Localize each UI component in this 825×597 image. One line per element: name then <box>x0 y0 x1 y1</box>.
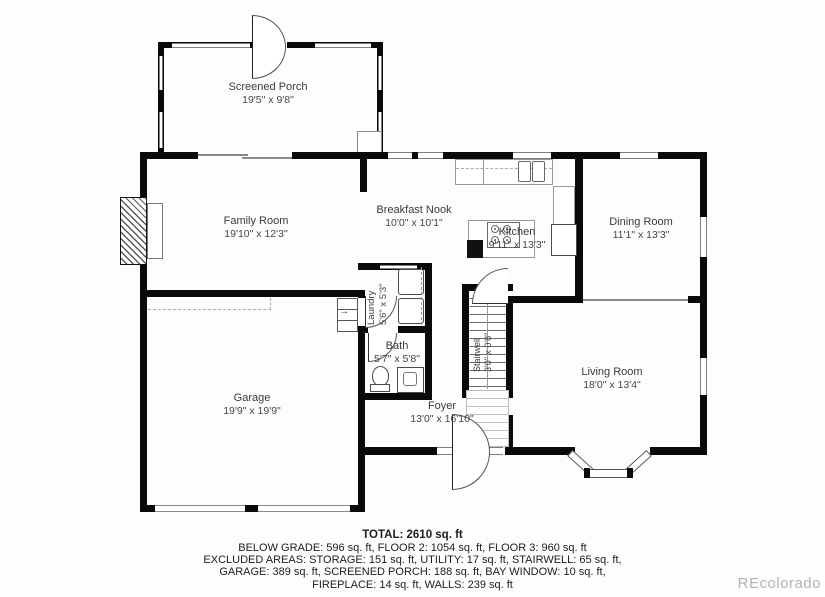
bath-sink <box>403 372 417 386</box>
total-area: TOTAL: 2610 sq. ft <box>0 529 825 542</box>
counter-divider <box>483 159 484 185</box>
floor-plan-canvas: ↑ → Screened Porch 19'5" x 9'8" <box>0 0 825 597</box>
wall <box>650 447 707 455</box>
bay-window-post <box>627 468 633 478</box>
summary-line: FIREPLACE: 14 sq. ft, WALLS: 239 sq. ft <box>0 579 825 591</box>
laundry-dashed-line <box>421 267 422 325</box>
refrigerator <box>551 224 577 256</box>
summary-line: EXCLUDED AREAS: STORAGE: 151 sq. ft, UTI… <box>0 554 825 566</box>
room-label-bath: Bath 5'7" x 5'8" <box>374 340 420 366</box>
window-post <box>412 152 418 159</box>
wall <box>700 152 707 455</box>
wall <box>360 152 367 192</box>
kitchen-door-arc <box>472 268 508 304</box>
fireplace <box>120 197 147 265</box>
wall <box>358 290 365 298</box>
garage-door <box>258 505 350 512</box>
room-label-foyer: Foyer 13'0" x 16'10" <box>410 400 473 426</box>
kitchen-sink <box>518 161 531 182</box>
porch-window <box>159 112 163 148</box>
garage-door <box>155 505 245 512</box>
room-label-kitchen: Kitchen 9'11" x 13'3" <box>489 226 546 252</box>
wall <box>507 296 583 303</box>
summary-line: GARAGE: 389 sq. ft, SCREENED PORCH: 188 … <box>0 566 825 578</box>
wall <box>362 447 437 455</box>
kitchen-window <box>513 152 551 159</box>
room-label-screened-porch: Screened Porch 19'5" x 9'8" <box>229 81 308 107</box>
wall <box>505 447 575 455</box>
wall <box>462 284 469 398</box>
porch-window <box>159 56 163 90</box>
sliding-door <box>198 152 292 159</box>
dining-side-window <box>700 217 707 257</box>
room-label-family: Family Room 19'10" x 12'3" <box>224 215 289 241</box>
toilet-tank <box>370 384 390 392</box>
kitchen-sink <box>532 161 545 182</box>
room-label-breakfast: Breakfast Nook 10'0" x 10'1" <box>376 204 451 230</box>
sidelight-window <box>437 447 452 455</box>
step-arrow: → <box>339 307 349 317</box>
room-label-laundry: Laundry 5'6" x 5'3" <box>366 267 389 325</box>
room-label-garage: Garage 19'9" x 19'9" <box>223 392 281 418</box>
room-opening-line <box>583 299 688 301</box>
wall <box>506 303 513 398</box>
porch-door-arc <box>252 15 286 79</box>
bay-window-post <box>584 468 590 478</box>
fireplace-hearth <box>147 203 163 259</box>
wall <box>688 296 707 303</box>
wall <box>358 328 365 512</box>
living-side-window <box>700 358 707 395</box>
porch-window <box>172 43 250 48</box>
bay-window-front <box>588 469 629 478</box>
wall <box>358 393 432 400</box>
toilet <box>372 366 389 386</box>
room-label-stairwell: Stairwell 3'0" x 0'8" <box>472 314 493 372</box>
porch-window <box>315 43 371 48</box>
porch-window <box>378 56 382 90</box>
garage-storage-dashed <box>148 298 271 310</box>
summary-line: BELOW GRADE: 596 sq. ft, FLOOR 2: 1054 s… <box>0 542 825 554</box>
room-label-living: Living Room 18'0" x 13'4" <box>581 366 642 392</box>
area-summary: TOTAL: 2610 sq. ft BELOW GRADE: 596 sq. … <box>0 529 825 591</box>
porch-step <box>357 131 382 153</box>
room-label-dining: Dining Room 11'1" x 13'3" <box>609 216 673 242</box>
watermark: REcolorado <box>738 575 821 592</box>
dining-window <box>620 152 658 159</box>
wall <box>140 290 365 297</box>
kitchen-appliance <box>467 240 483 258</box>
